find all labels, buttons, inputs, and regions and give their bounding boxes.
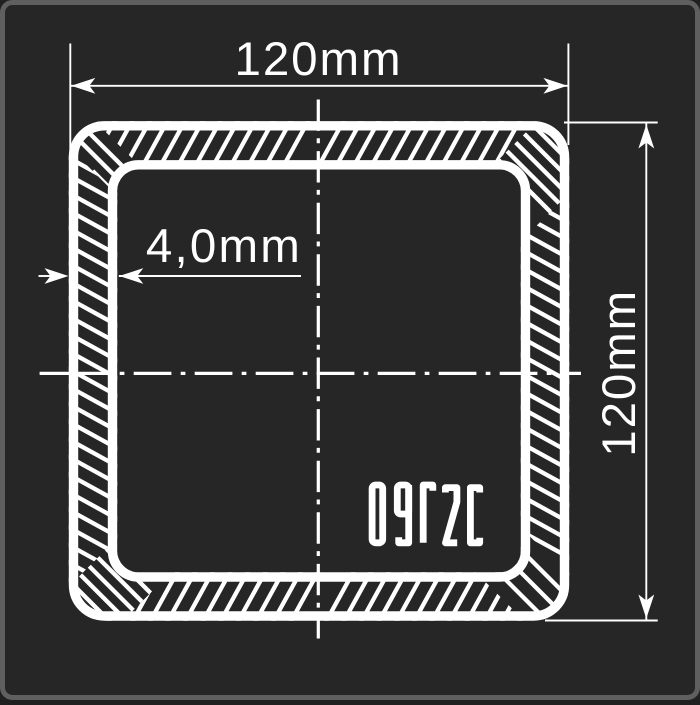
svg-text:4,0mm: 4,0mm [146,220,302,273]
svg-text:120mm: 120mm [235,33,403,86]
svg-text:120mm: 120mm [593,289,646,457]
